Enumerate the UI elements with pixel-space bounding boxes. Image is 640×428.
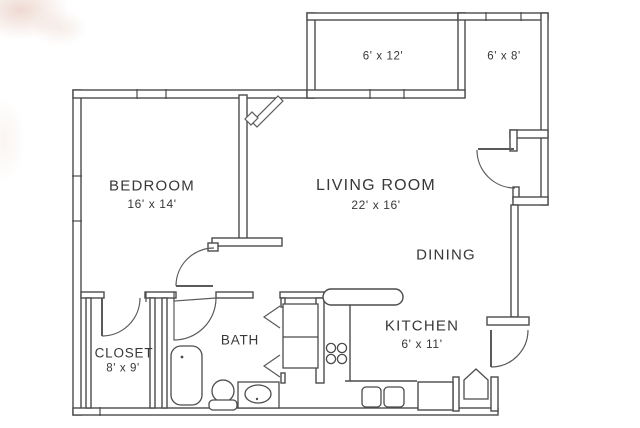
opening-chevron [264,355,280,377]
wall-balcony-divider [458,13,465,97]
patio-dims: 6' x 8' [487,51,521,63]
wall-hall-top-jamb [208,243,218,251]
wall-hall-b [145,292,176,298]
wall-patio-top [458,13,548,20]
wall-hall-d [280,292,324,298]
bath-door [174,298,216,340]
wall-balcony-top [307,13,465,20]
kitchen-sink-icon [362,387,404,407]
closet-label: CLOSET [95,346,154,360]
door-arc [477,150,515,188]
wall-hall-c [216,292,253,298]
wall-hall-a [81,292,104,298]
wall-dining-east [511,205,518,317]
wall-water-heater-left [453,377,459,411]
toilet-icon [209,380,237,410]
dishwasher [418,382,453,410]
wall-hall-top [212,238,282,246]
kitchen-door [491,330,528,367]
wall-bath-west [162,298,167,408]
floor-plan-drawing [0,0,640,428]
closet-dims: 8' x 9' [106,363,140,375]
door-arc [176,248,214,286]
stove-burners-icon [326,343,346,363]
bath-label: BATH [221,333,259,347]
wall-entry-bottom [513,197,548,205]
peninsula-counter [323,289,403,305]
bathtub-icon [171,346,202,405]
wall-kitchen-door-header [487,317,529,325]
wall-left [73,90,81,415]
vanity-sink-icon [238,382,279,408]
wall-bath-east-stub-bottom [281,373,285,383]
living-room-dims: 22' x 16' [351,199,400,211]
balcony-dims: 6' x 12' [363,51,404,63]
opening-chevrons [264,306,280,377]
bedroom-door [176,248,214,286]
kitchen-label: KITCHEN [385,319,459,334]
wall-water-heater-right [491,377,498,411]
wall-entry-step-v [510,130,517,151]
wall-bedroom-east [239,95,247,242]
bedroom-label: BEDROOM [109,179,195,194]
kitchen-dims: 6' x 11' [401,338,442,350]
living-room-label: LIVING ROOM [316,178,436,194]
door-arc [102,298,140,336]
opening-chevron [264,306,280,328]
pantry-shelves [283,304,318,368]
wall-balcony-left [307,13,315,98]
door-wedge [174,298,216,340]
closet-door [102,298,140,336]
angled-door [245,96,283,127]
wall-balcony-bottom [307,90,465,98]
door-arc [491,330,528,367]
floor-plan: 6' x 12' 6' x 8' BEDROOM 16' x 14' LIVIN… [0,0,640,428]
dining-label: DINING [416,248,476,263]
wall-closet-west [86,298,91,408]
bedroom-dims: 16' x 14' [127,198,176,210]
entry-door [477,149,515,188]
wall-right [541,13,548,205]
water-heater-icon [464,369,488,399]
door-leaf-diagonal [252,96,283,127]
